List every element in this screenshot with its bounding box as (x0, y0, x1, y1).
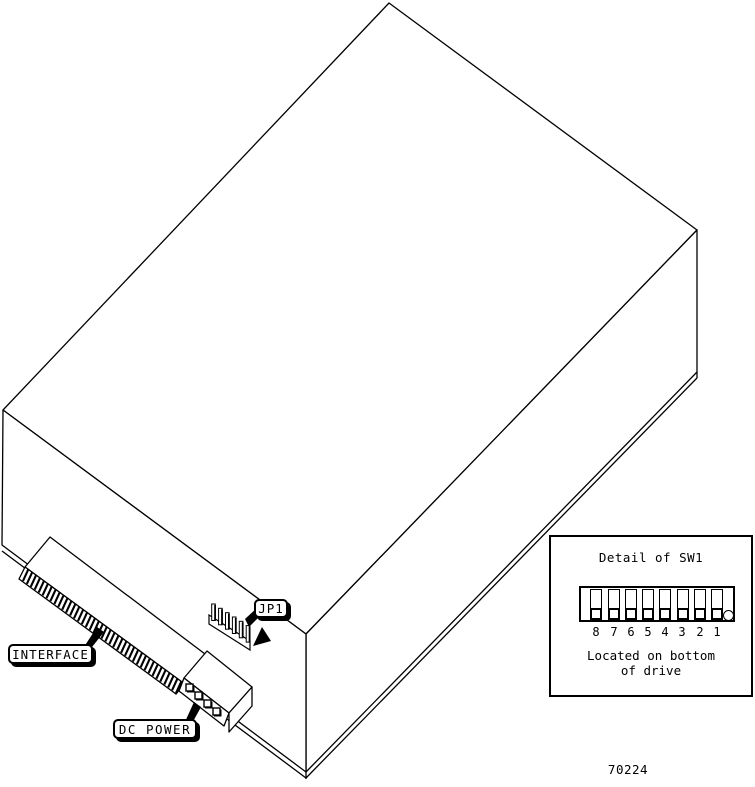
dip-switch-slot-7 (608, 589, 620, 619)
dip-switch-actuator (625, 608, 637, 620)
dip-switch (579, 586, 735, 622)
dip-switch-slot-2 (694, 589, 706, 619)
dip-switch-actuator (590, 608, 602, 620)
pin1-indicator-circle (723, 610, 734, 621)
switch-number: 5 (641, 625, 655, 639)
dip-switch-slot-4 (659, 589, 671, 619)
switch-number: 7 (607, 625, 621, 639)
switch-number: 2 (693, 625, 707, 639)
dip-switch-actuator (659, 608, 671, 620)
technical-diagram-page: INTERFACE DC POWER JP1 Detail of SW1 8 7… (0, 0, 755, 787)
dip-switch-slot-5 (642, 589, 654, 619)
dip-switch-actuator (642, 608, 654, 620)
dc-power-callout-label: DC POWER (113, 719, 197, 739)
switch-number: 1 (710, 625, 724, 639)
dip-switch-slot-3 (677, 589, 689, 619)
detail-note-line1: Located on bottom (551, 648, 751, 663)
detail-note-line2: of drive (551, 663, 751, 678)
dip-switch-actuator (608, 608, 620, 620)
dip-switch-actuator (711, 608, 723, 620)
switch-number: 6 (624, 625, 638, 639)
detail-box-title: Detail of SW1 (551, 550, 751, 565)
dip-switch-actuator (694, 608, 706, 620)
interface-callout-label: INTERFACE (8, 644, 93, 664)
switch-number: 8 (589, 625, 603, 639)
dip-switch-slot-1 (711, 589, 723, 619)
dip-switch-slot-8 (590, 589, 602, 619)
jp1-callout-label: JP1 (254, 599, 288, 618)
dip-switch-slot-6 (625, 589, 637, 619)
dip-switch-actuator (677, 608, 689, 620)
sw1-detail-box: Detail of SW1 8 7 6 5 4 3 2 1 Located on… (549, 535, 753, 697)
switch-number: 3 (675, 625, 689, 639)
switch-number: 4 (658, 625, 672, 639)
figure-number: 70224 (598, 762, 658, 777)
